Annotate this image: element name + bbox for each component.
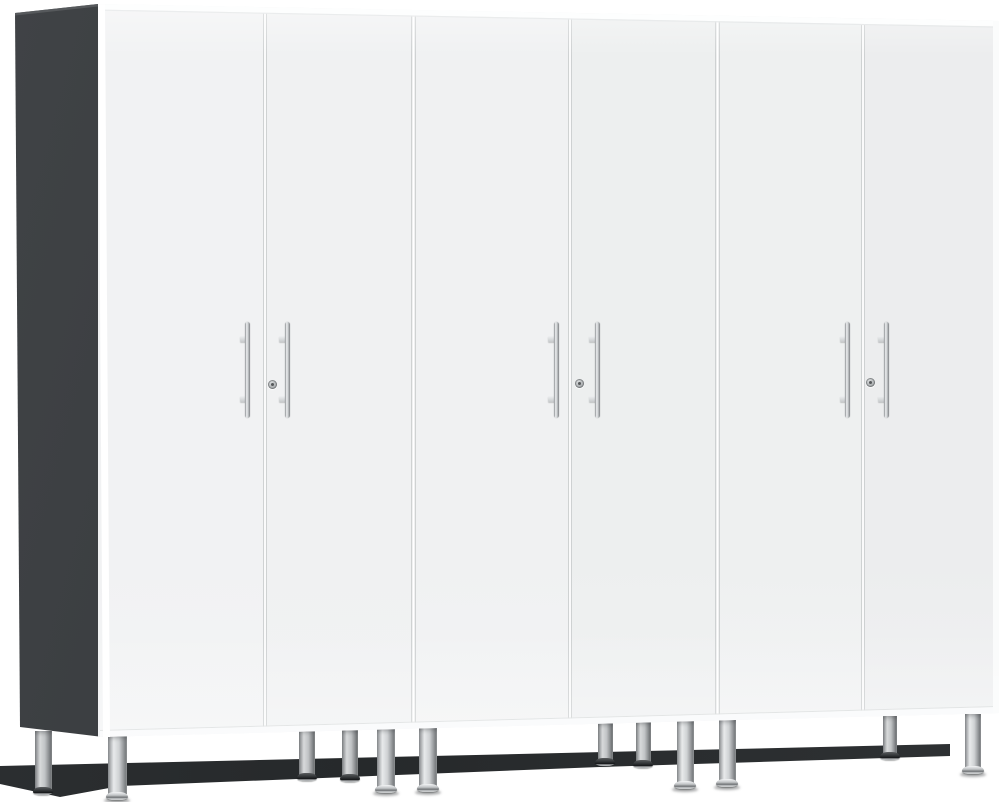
door-handle <box>595 322 600 418</box>
cabinet-lock <box>268 380 277 389</box>
garage-cabinet-set-photo <box>0 0 1004 802</box>
door-handle <box>554 322 559 418</box>
cabinet-lock-keyhole <box>271 383 274 386</box>
door-handle <box>884 322 889 418</box>
cabinet-lock <box>866 378 875 387</box>
cabinet-lock-keyhole <box>578 382 581 385</box>
door-handle <box>245 322 250 418</box>
door-handle <box>845 322 850 418</box>
door-handle <box>285 322 290 418</box>
cabinet-lock <box>575 379 584 388</box>
hardware-layer <box>0 0 1004 802</box>
cabinet-lock-keyhole <box>869 381 872 384</box>
